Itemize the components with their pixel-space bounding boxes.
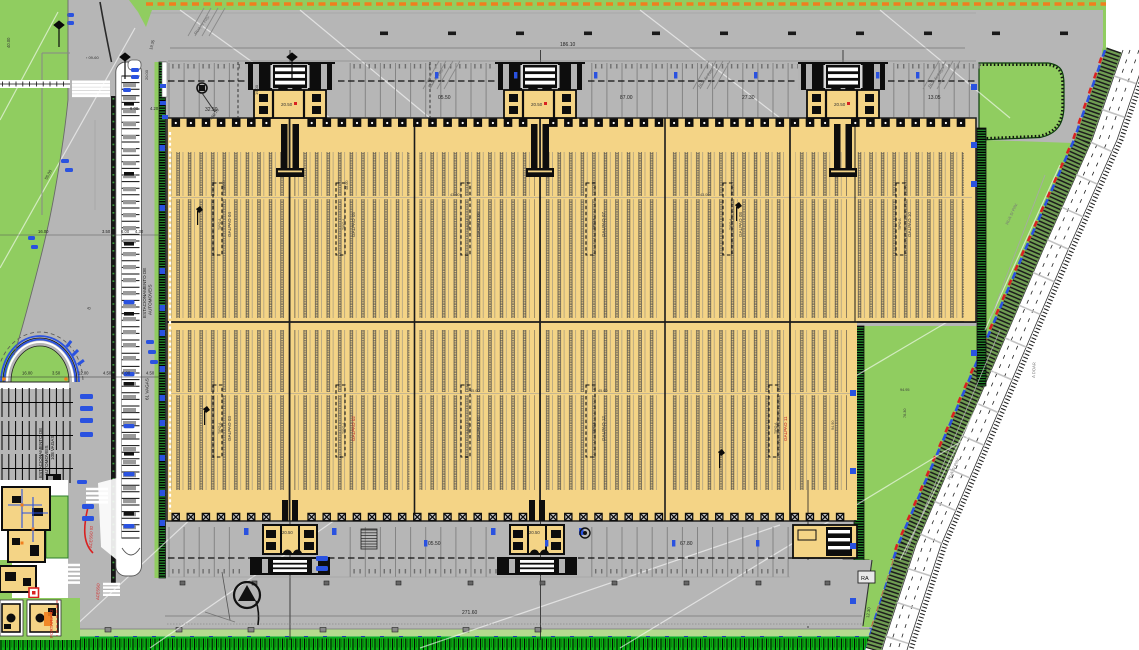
svg-text:12.00: 12.00 — [78, 371, 89, 376]
svg-text:20.50: 20.50 — [834, 102, 846, 107]
svg-text:45.00: 45.00 — [598, 389, 608, 393]
svg-text:GALPAO 10: GALPAO 10 — [907, 212, 912, 237]
svg-text:TIPO A: TIPO A — [729, 218, 733, 230]
svg-text:20.50: 20.50 — [281, 102, 293, 107]
svg-text:3.50: 3.50 — [102, 229, 111, 234]
svg-text:43.00: 43.00 — [700, 193, 710, 197]
svg-text:87.00: 87.00 — [620, 95, 633, 101]
svg-text:186.10: 186.10 — [560, 42, 576, 48]
svg-text:3.50: 3.50 — [52, 371, 61, 376]
svg-text:GALPAO 06: GALPAO 06 — [476, 212, 481, 237]
svg-text:6.00: 6.00 — [121, 229, 130, 234]
svg-text:ACESSO: ACESSO — [95, 583, 101, 600]
svg-text:ACESSO 02: ACESSO 02 — [88, 525, 94, 548]
svg-text:TIPO A: TIPO A — [342, 422, 346, 434]
svg-text:20.50: 20.50 — [529, 530, 540, 535]
svg-text:16.00: 16.00 — [22, 371, 33, 376]
svg-text:TIPO A: TIPO A — [218, 422, 222, 434]
svg-text:94.95: 94.95 — [900, 388, 910, 392]
svg-text:TIPO A: TIPO A — [467, 218, 471, 230]
svg-text:AUTOMOVEIS: AUTOMOVEIS — [148, 284, 153, 315]
svg-text:94.90: 94.90 — [831, 420, 835, 430]
svg-text:TIPO A: TIPO A — [592, 218, 596, 230]
svg-text:TIPO A: TIPO A — [898, 218, 902, 230]
svg-text:4.20: 4.20 — [150, 106, 159, 111]
svg-text:76.30: 76.30 — [903, 408, 907, 418]
svg-text:GALPAO 03: GALPAO 03 — [227, 416, 232, 441]
svg-text:4.50: 4.50 — [103, 371, 112, 376]
svg-text:20.50: 20.50 — [282, 530, 293, 535]
svg-text:40.00: 40.00 — [6, 37, 11, 48]
svg-text:61 VAGAS: 61 VAGAS — [145, 378, 150, 400]
svg-text:4.30: 4.30 — [135, 229, 144, 234]
svg-text:GALPAO 05: GALPAO 05 — [351, 212, 356, 237]
svg-text:ESTACIONAMENTO DE: ESTACIONAMENTO DE — [38, 428, 43, 478]
svg-text:45.00: 45.00 — [470, 389, 480, 393]
svg-text:PORTARIA 02: PORTARIA 02 — [49, 609, 54, 638]
svg-text:GALPAO 01: GALPAO 01 — [476, 416, 481, 441]
svg-text:GALPAO 07: GALPAO 07 — [601, 212, 606, 237]
svg-text:67.80: 67.80 — [680, 541, 693, 547]
svg-text:A DOAR: A DOAR — [1031, 362, 1037, 378]
svg-text:TIPO A: TIPO A — [218, 218, 222, 230]
svg-text:GALPAO 11: GALPAO 11 — [783, 416, 788, 441]
svg-text:108 VAGAS: 108 VAGAS — [50, 436, 55, 460]
svg-text:GALPAO 04: GALPAO 04 — [227, 212, 232, 237]
svg-text:20.00: 20.00 — [144, 69, 149, 80]
svg-text:43.00: 43.00 — [450, 193, 460, 197]
svg-text:ESTACIONAMENTO DE: ESTACIONAMENTO DE — [142, 268, 147, 318]
svg-text:TIPO A: TIPO A — [774, 422, 778, 434]
svg-text:27.30: 27.30 — [742, 95, 755, 101]
svg-text:43.00: 43.00 — [222, 180, 226, 190]
svg-text:TIPO A: TIPO A — [467, 422, 471, 434]
svg-text:05.50: 05.50 — [428, 541, 441, 547]
svg-text:TIPO A: TIPO A — [342, 218, 346, 230]
svg-text:6.00: 6.00 — [122, 371, 131, 376]
svg-text:4.50: 4.50 — [146, 371, 155, 376]
svg-text:GALPAO 12: GALPAO 12 — [601, 416, 606, 441]
svg-text:GALPAO 08: GALPAO 08 — [738, 212, 743, 237]
svg-text:271.60: 271.60 — [462, 610, 478, 616]
svg-text:48.00: 48.00 — [345, 180, 349, 190]
svg-text:6.00: 6.00 — [130, 106, 139, 111]
svg-text:AUTOMOVEIS: AUTOMOVEIS — [44, 445, 49, 476]
svg-text:13.05: 13.05 — [928, 95, 941, 101]
svg-text:19.00: 19.00 — [254, 84, 259, 95]
svg-text:16.00: 16.00 — [38, 229, 49, 234]
svg-text:05.50: 05.50 — [438, 95, 451, 101]
svg-text:‹ 09-60: ‹ 09-60 — [86, 55, 99, 60]
svg-text:TIPO A: TIPO A — [592, 422, 596, 434]
svg-text:RA: RA — [861, 576, 869, 582]
svg-text:20.50: 20.50 — [531, 102, 543, 107]
svg-text:GALPAO 02: GALPAO 02 — [351, 416, 356, 441]
